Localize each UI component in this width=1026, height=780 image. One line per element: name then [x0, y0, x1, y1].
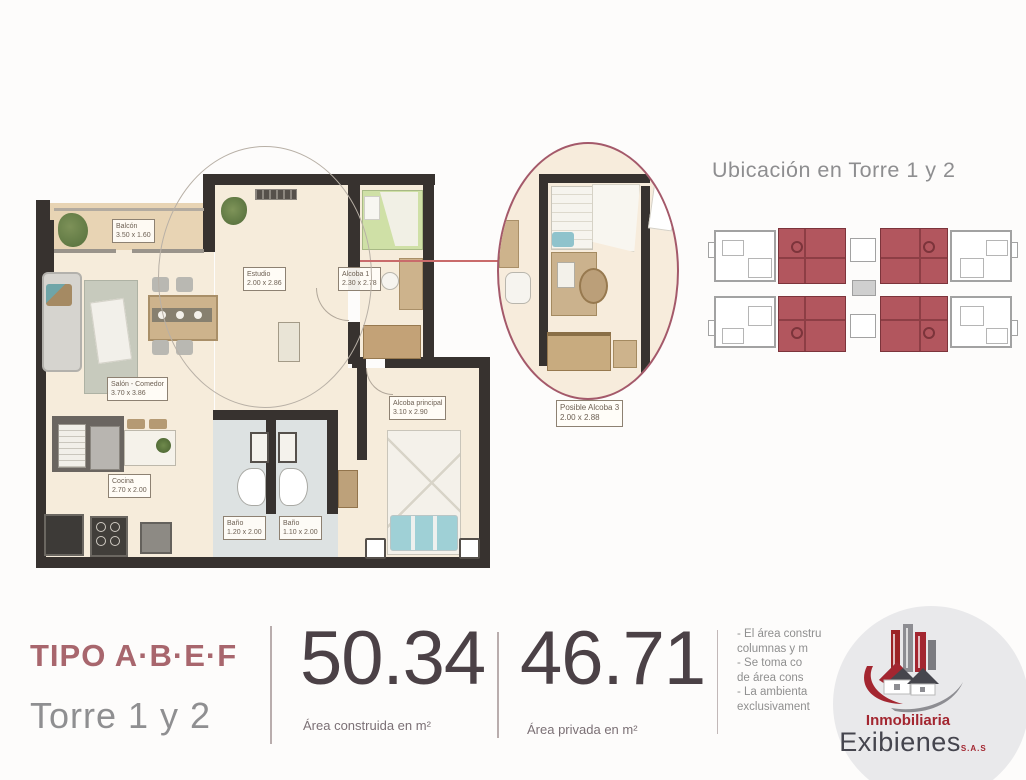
toilet-icon	[279, 468, 308, 506]
private-area-value: 46.71	[520, 615, 705, 702]
unit-dot-icon	[923, 327, 935, 339]
bath-door	[338, 470, 358, 508]
washer	[90, 426, 120, 470]
unit-room-line	[960, 258, 984, 278]
burner-icon	[96, 536, 106, 546]
built-area-caption: Área construida en m²	[303, 718, 431, 733]
detail-dresser	[547, 332, 611, 371]
detail-callout-label: Posible Alcoba 3 2.00 x 2.88	[556, 400, 623, 427]
unit-highlighted	[880, 296, 948, 352]
logo-line2: ExibienesS.A.S	[833, 727, 993, 758]
vanity	[278, 432, 297, 463]
unit-highlighted	[778, 296, 846, 352]
unit-dot-icon	[791, 241, 803, 253]
kitchen-tile	[44, 514, 84, 556]
alcoba1-desk	[399, 258, 423, 310]
unit-dot-icon	[923, 241, 935, 253]
unit-wall-line	[804, 297, 806, 351]
logo-suffix: S.A.S	[961, 744, 987, 753]
unit-highlighted	[880, 228, 948, 284]
unit-outline	[950, 296, 1012, 348]
room-name: Cocina	[112, 477, 147, 486]
room-label-bano1: Baño 1.20 x 2.00	[223, 516, 266, 540]
edge-stub	[708, 320, 715, 336]
tower-label: Torre 1 y 2	[30, 695, 211, 737]
callout-name: Posible Alcoba 3	[560, 403, 619, 413]
divider	[270, 626, 272, 744]
edge-stub	[708, 242, 715, 258]
toilet-icon	[237, 468, 266, 506]
detail-box	[613, 340, 637, 368]
room-name: Salón - Comedor	[111, 380, 164, 389]
room-name: Baño	[227, 519, 262, 528]
unit-wall-line	[779, 319, 845, 321]
unit-wall-line	[881, 319, 947, 321]
stove	[90, 516, 128, 557]
room-label-bano2: Baño 1.10 x 2.00	[279, 516, 322, 540]
unit-wall-line	[804, 229, 806, 283]
core-top	[850, 238, 876, 262]
fridge	[58, 424, 86, 468]
master-pillows	[390, 515, 458, 551]
room-dims: 3.70 x 3.86	[111, 389, 164, 398]
built-area-value: 50.34	[300, 615, 485, 702]
detail-bed-pillow	[552, 232, 574, 247]
detail-sideboard	[499, 220, 519, 268]
detail-chair	[579, 268, 608, 304]
logo-brand: Exibienes	[839, 727, 961, 757]
unit-outline	[714, 296, 776, 348]
callout-dims: 2.00 x 2.88	[560, 413, 619, 423]
room-dims: 3.50 x 1.60	[116, 231, 151, 240]
wall-balcony-corner	[36, 200, 50, 222]
location-title: Ubicación en Torre 1 y 2	[712, 158, 955, 183]
detail-duvet	[592, 184, 640, 252]
edge-stub	[1011, 242, 1018, 258]
unit-room-line	[748, 306, 772, 326]
zoom-source-ellipse	[158, 146, 372, 408]
sofa-pillow	[46, 284, 72, 306]
burner-icon	[110, 536, 120, 546]
type-label: TIPO A·B·E·F	[30, 638, 237, 674]
living-window-a	[54, 249, 116, 253]
stool	[127, 419, 145, 429]
unit-highlighted	[778, 228, 846, 284]
flyer-canvas: Balcón 3.50 x 1.60 Estudio 2.00 x 2.86 A…	[0, 0, 1026, 780]
wall-master-right	[479, 357, 490, 568]
unit-wall-line	[919, 297, 921, 351]
kitchen-plant-icon	[156, 438, 171, 453]
alcoba1-dresser	[363, 325, 421, 359]
disclaimer-line: - El área constru	[737, 627, 862, 642]
room-dims: 1.20 x 2.00	[227, 528, 262, 537]
core-bottom	[850, 314, 876, 338]
burner-icon	[110, 522, 120, 532]
unit-wall-line	[779, 257, 845, 259]
dining-chair	[152, 340, 169, 355]
unit-room-line	[748, 258, 772, 278]
edge-stub	[1011, 320, 1018, 336]
room-label-salon-comedor: Salón - Comedor 3.70 x 3.86	[107, 377, 168, 401]
detail-guest-chair	[505, 272, 531, 304]
detail-wall-top	[539, 174, 650, 183]
alcoba1-chair	[381, 272, 399, 290]
wall-hall-left	[357, 368, 367, 460]
room-label-alcoba-principal: Alcoba principal 3.10 x 2.90	[389, 396, 446, 420]
burner-icon	[96, 522, 106, 532]
disclaimer-line: columnas y m	[737, 642, 862, 657]
tower-diagram	[712, 208, 1014, 360]
unit-dot-icon	[791, 327, 803, 339]
detail-callout-circle	[497, 142, 679, 400]
unit-outline	[950, 230, 1012, 282]
room-name: Baño	[283, 519, 318, 528]
private-area-caption: Área privada en m²	[527, 722, 638, 737]
room-label-balcon: Balcón 3.50 x 1.60	[112, 219, 155, 243]
unit-room-line	[986, 328, 1008, 344]
callout-connector-line	[360, 260, 502, 262]
wall-alcoba1-right	[423, 174, 434, 364]
company-logo: Inmobiliaria ExibienesS.A.S	[833, 606, 1026, 780]
unit-room-line	[722, 240, 744, 256]
divider	[717, 630, 718, 734]
unit-outline	[714, 230, 776, 282]
window-marker-icon	[459, 538, 480, 559]
unit-room-line	[986, 240, 1008, 256]
unit-room-line	[960, 306, 984, 326]
unit-wall-line	[919, 229, 921, 283]
divider	[497, 632, 499, 738]
unit-room-line	[722, 328, 744, 344]
room-dims: 1.10 x 2.00	[283, 528, 318, 537]
vanity	[250, 432, 269, 463]
wall-bottom	[36, 557, 490, 568]
balcony-plant-icon	[58, 213, 88, 247]
unit-wall-line	[881, 257, 947, 259]
room-dims: 3.10 x 2.90	[393, 408, 442, 417]
core-mid	[852, 280, 876, 296]
room-dims: 2.70 x 2.00	[112, 486, 147, 495]
room-name: Balcón	[116, 222, 151, 231]
wall-bath-right	[327, 410, 338, 514]
alcoba1-pillow	[364, 196, 380, 220]
kitchen-sink	[140, 522, 172, 554]
window-marker-icon	[365, 538, 386, 559]
room-label-cocina: Cocina 2.70 x 2.00	[108, 474, 151, 498]
room-name: Alcoba principal	[393, 399, 442, 408]
detail-monitor	[557, 262, 575, 288]
stool	[149, 419, 167, 429]
logo-buildings-icon	[851, 620, 971, 716]
